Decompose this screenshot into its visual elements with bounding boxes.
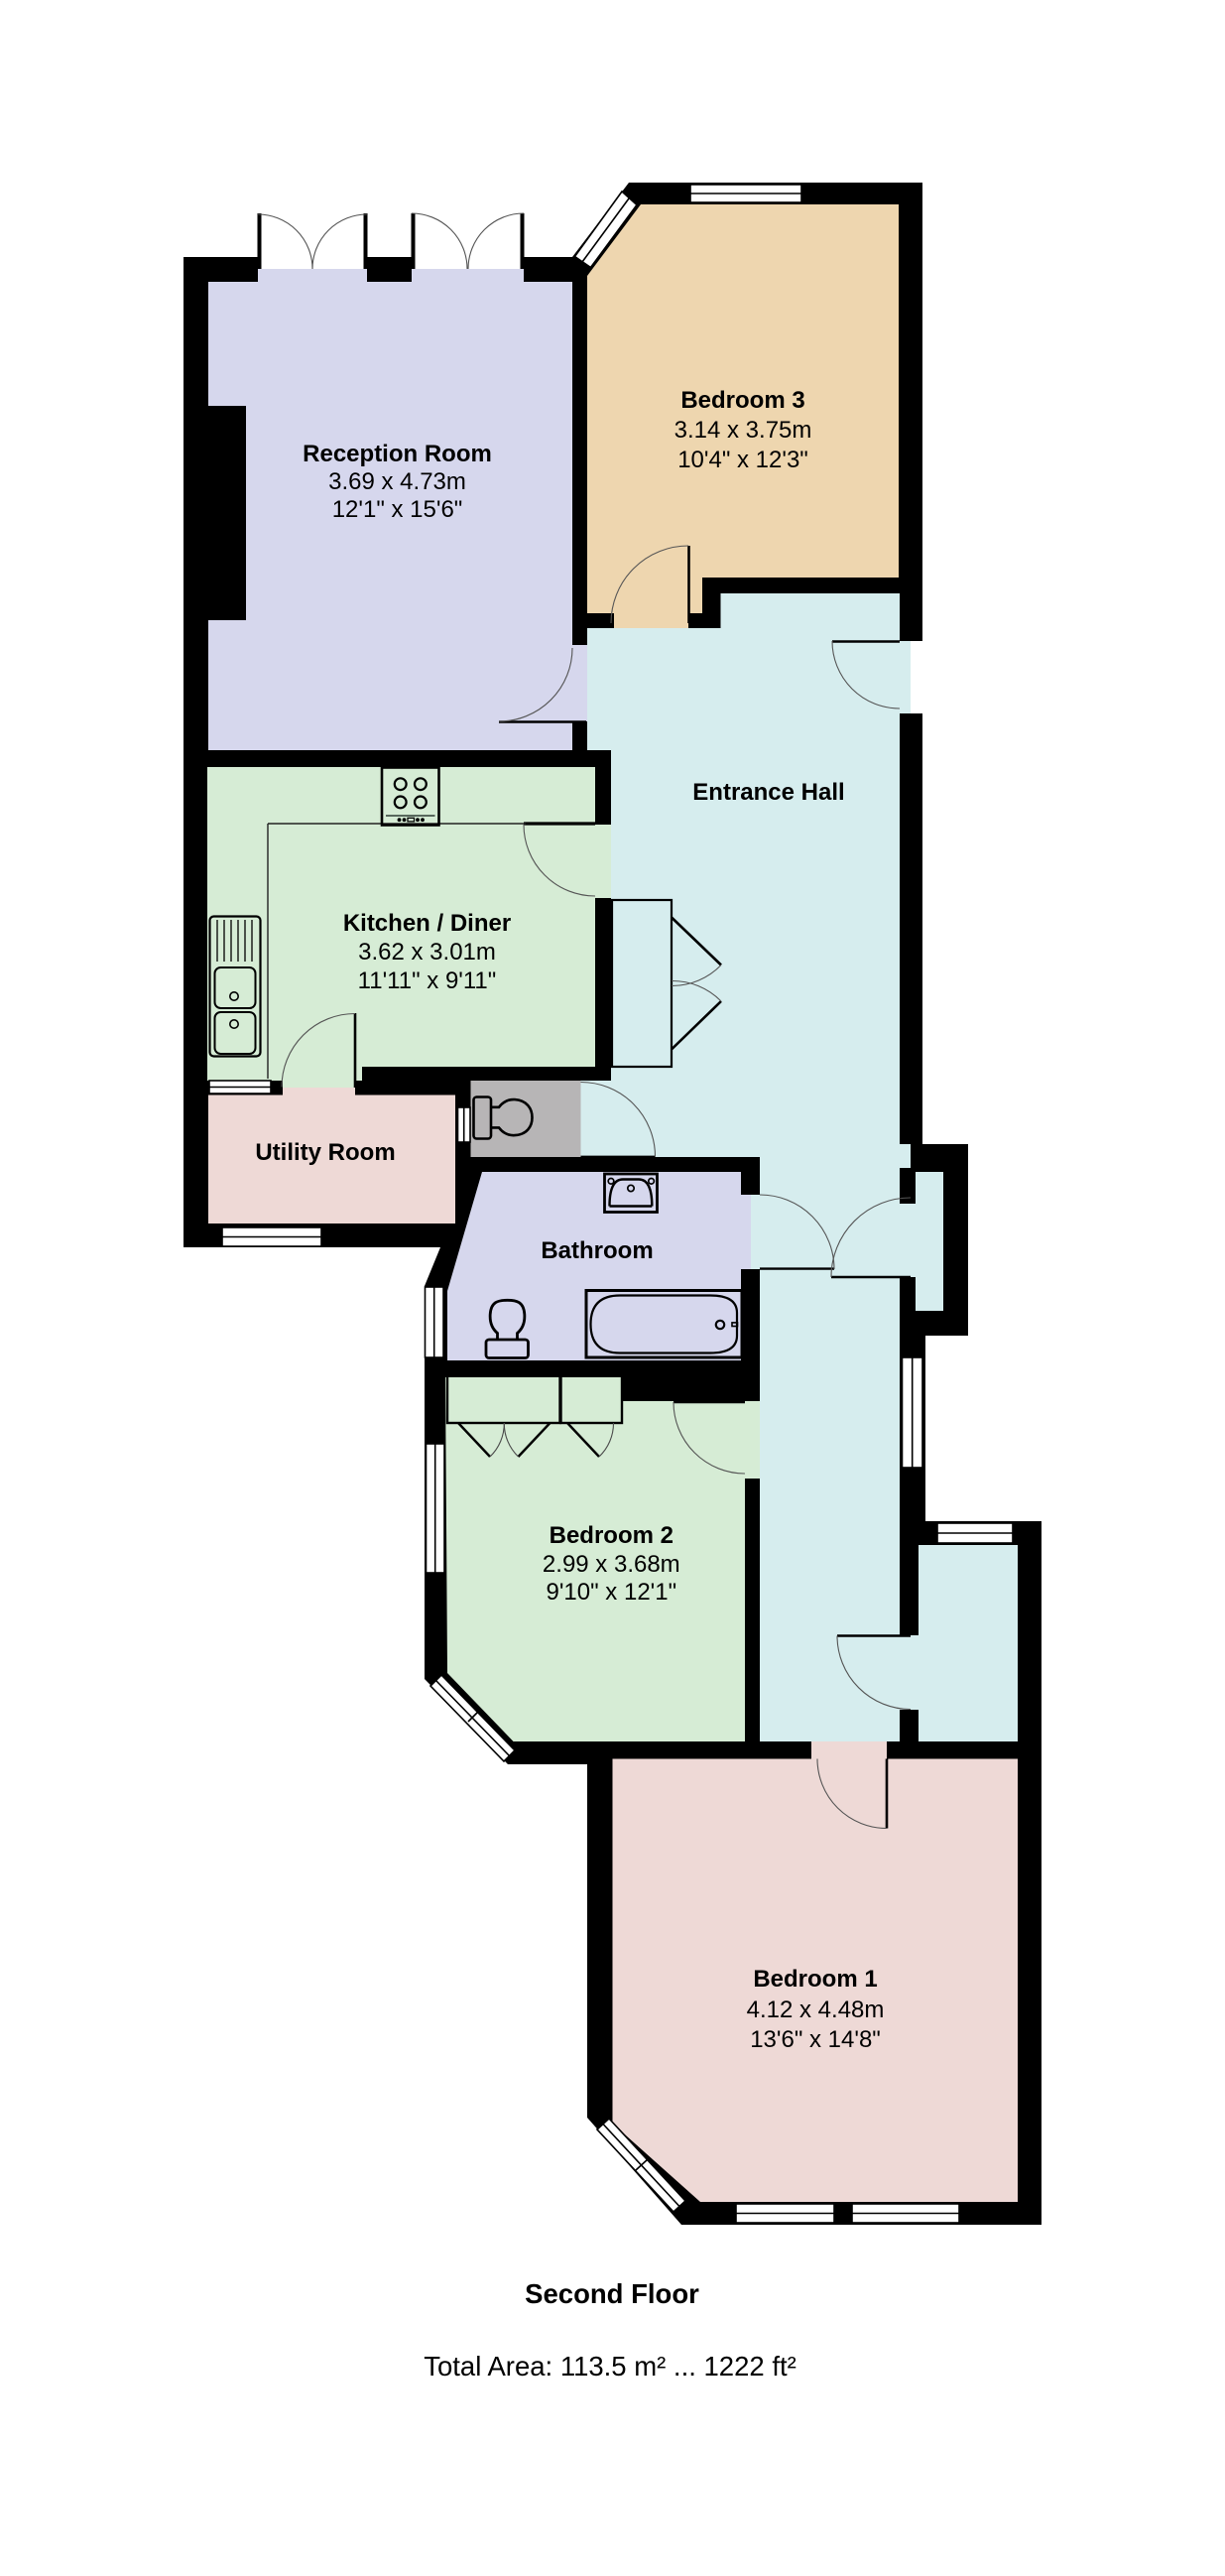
svg-text:Bedroom 1: Bedroom 1: [753, 1966, 877, 1993]
svg-text:13'6" x 14'8": 13'6" x 14'8": [750, 2026, 881, 2053]
svg-text:3.69 x 4.73m: 3.69 x 4.73m: [328, 468, 466, 495]
svg-text:Bedroom 3: Bedroom 3: [680, 387, 804, 414]
svg-text:2.99 x 3.68m: 2.99 x 3.68m: [543, 1551, 680, 1578]
svg-text:4.12 x 4.48m: 4.12 x 4.48m: [747, 1996, 885, 2023]
svg-text:Bathroom: Bathroom: [541, 1237, 653, 1264]
svg-text:Kitchen / Diner: Kitchen / Diner: [343, 910, 511, 937]
svg-text:11'11" x 9'11": 11'11" x 9'11": [358, 967, 497, 994]
svg-text:Second Floor: Second Floor: [525, 2278, 699, 2309]
svg-text:3.14 x 3.75m: 3.14 x 3.75m: [674, 417, 812, 444]
svg-text:10'4" x 12'3": 10'4" x 12'3": [677, 447, 808, 473]
svg-text:Bedroom 2: Bedroom 2: [550, 1522, 674, 1549]
svg-text:9'10" x 12'1": 9'10" x 12'1": [546, 1579, 676, 1606]
svg-text:Entrance Hall: Entrance Hall: [692, 779, 844, 806]
svg-text:Utility Room: Utility Room: [255, 1139, 395, 1166]
svg-text:Total Area: 113.5 m² ... 1222: Total Area: 113.5 m² ... 1222 ft²: [424, 2351, 796, 2382]
svg-text:3.62 x 3.01m: 3.62 x 3.01m: [358, 939, 496, 966]
svg-text:Reception Room: Reception Room: [303, 441, 492, 467]
svg-text:12'1" x 15'6": 12'1" x 15'6": [332, 496, 463, 523]
